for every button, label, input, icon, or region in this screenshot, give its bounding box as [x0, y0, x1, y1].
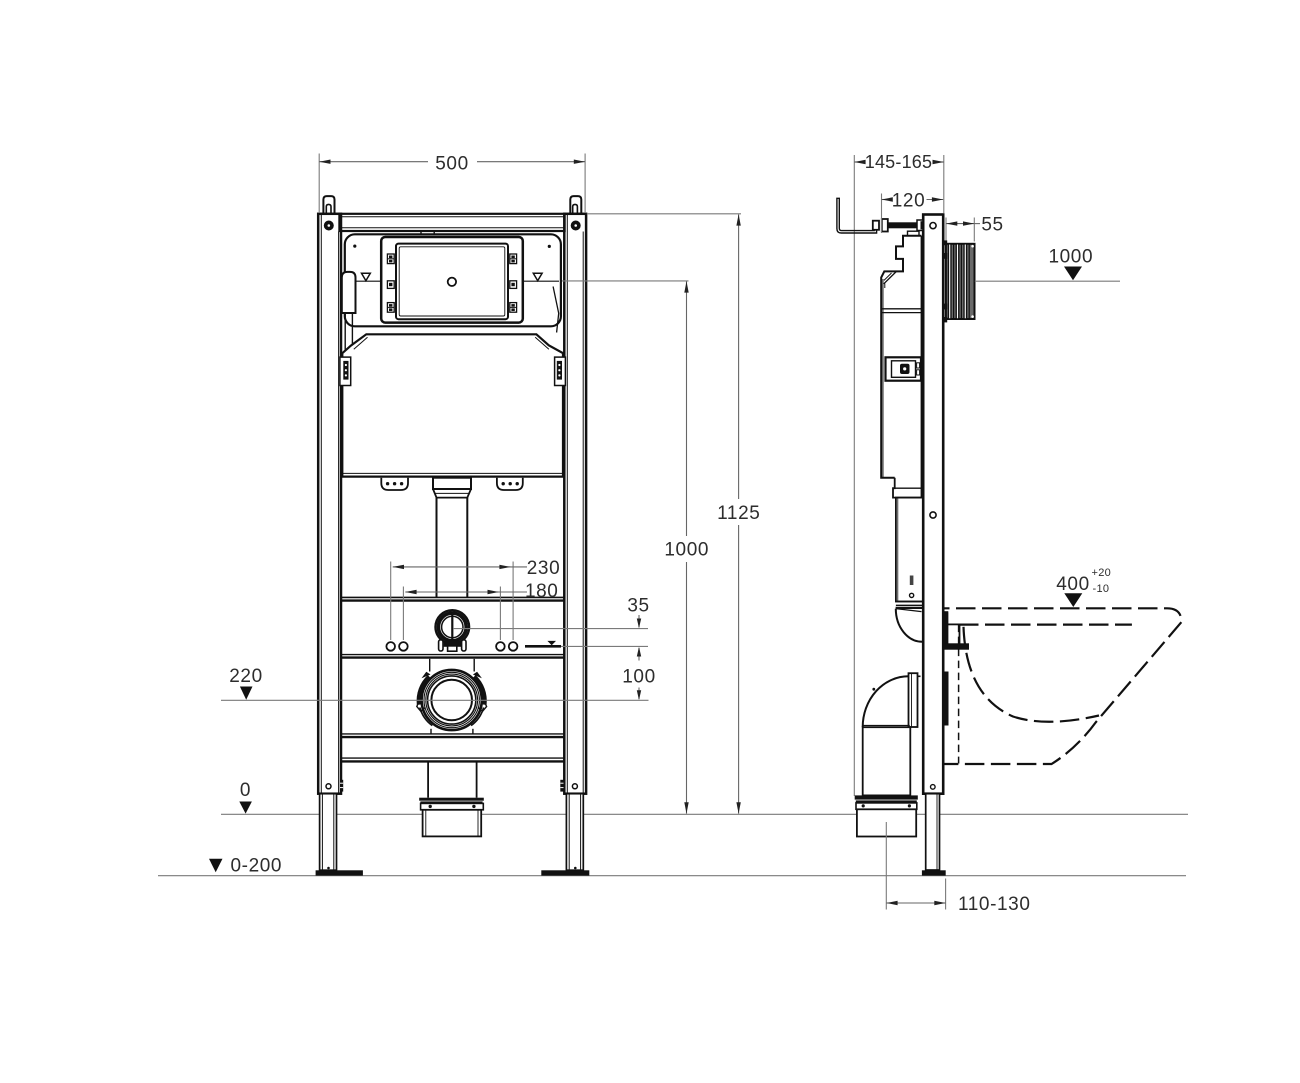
svg-text:500: 500	[435, 153, 469, 174]
svg-text:1125: 1125	[717, 503, 760, 524]
svg-text:35: 35	[627, 595, 649, 616]
svg-text:120: 120	[892, 190, 926, 211]
svg-text:400: 400	[1056, 574, 1090, 595]
svg-text:+20: +20	[1092, 567, 1112, 579]
svg-text:-10: -10	[1093, 583, 1110, 595]
svg-text:55: 55	[981, 215, 1003, 236]
svg-text:100: 100	[622, 666, 656, 687]
svg-text:145-165: 145-165	[865, 152, 932, 172]
svg-text:1000: 1000	[664, 540, 709, 561]
svg-text:230: 230	[527, 558, 561, 579]
svg-text:1000: 1000	[1048, 247, 1093, 268]
svg-text:0-200: 0-200	[231, 856, 283, 877]
svg-text:220: 220	[229, 666, 263, 687]
svg-text:0: 0	[240, 780, 251, 801]
svg-text:110-130: 110-130	[958, 894, 1031, 915]
svg-text:180: 180	[525, 581, 559, 602]
